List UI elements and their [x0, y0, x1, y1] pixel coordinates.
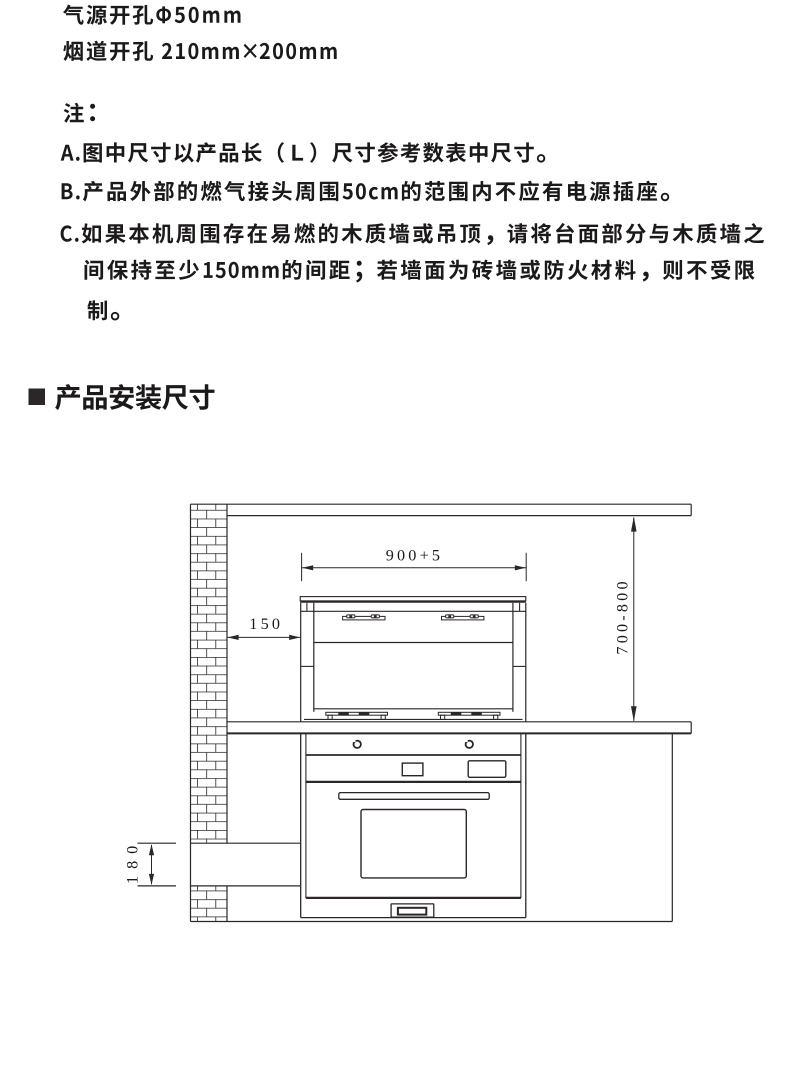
svg-text:900+5: 900+5 — [386, 546, 444, 564]
svg-text:150: 150 — [249, 615, 283, 633]
svg-text:180: 180 — [124, 839, 142, 884]
svg-text:700-800: 700-800 — [613, 578, 631, 654]
